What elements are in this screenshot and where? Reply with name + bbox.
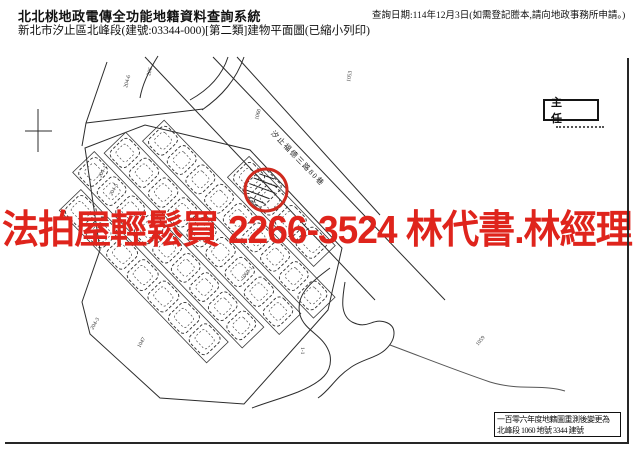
svg-text:204-6: 204-6 — [123, 74, 132, 88]
road-lines — [145, 57, 445, 300]
svg-text:1047: 1047 — [137, 336, 148, 349]
terrain-boundaries — [252, 268, 565, 408]
svg-text:204-3: 204-3 — [90, 317, 102, 331]
svg-text:1059: 1059 — [475, 335, 487, 347]
watermark-ad-text: 法拍屋輕鬆買 2266-3524 林代書.林經理 — [2, 199, 620, 255]
resurvey-note-line2: 北峰段 1060 地號 3344 建號 — [497, 425, 618, 436]
cadastral-printout-page: 北北桃地政電傳全功能地籍資料查詢系統 新北市汐止區北峰段(建號:03344-00… — [0, 0, 640, 449]
survey-cross-icon — [25, 109, 52, 152]
page-border-bottom — [5, 442, 629, 444]
svg-text:1060-1: 1060-1 — [240, 265, 255, 281]
boundary-lines-top-left — [82, 56, 244, 146]
svg-text:204-5: 204-5 — [108, 183, 119, 197]
stamp-signature-line — [556, 126, 604, 128]
resurvey-note-line1: 一百零六年度地籍圖重測後變更為 — [497, 414, 618, 425]
svg-text:1060: 1060 — [254, 108, 263, 120]
director-stamp-box: 主 任 — [543, 99, 599, 121]
svg-text:1-1: 1-1 — [299, 347, 305, 355]
svg-text:206: 206 — [146, 67, 154, 77]
resurvey-note-box: 一百零六年度地籍圖重測後變更為 北峰段 1060 地號 3344 建號 — [494, 412, 621, 437]
page-border-right — [627, 58, 629, 444]
svg-text:1053: 1053 — [346, 70, 354, 82]
